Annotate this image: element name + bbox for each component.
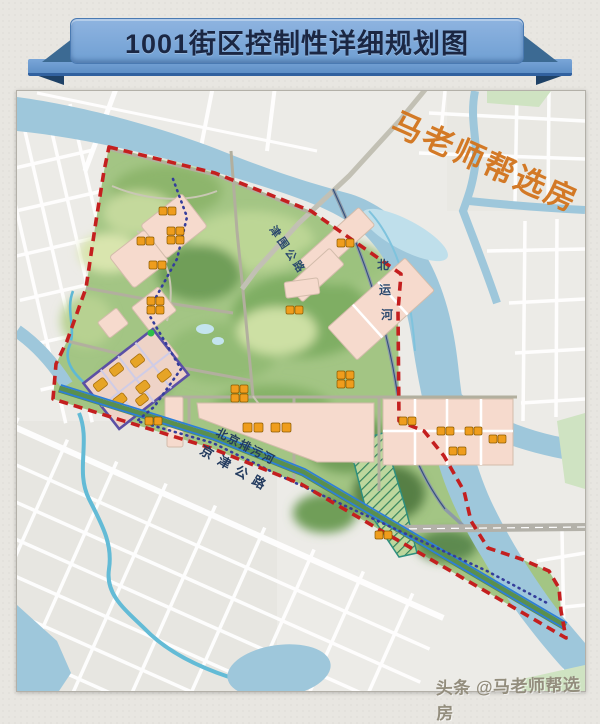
page-title: 1001街区控制性详细规划图 <box>125 22 469 61</box>
map-canvas: 北 运 河 津围公路 北京排污河 京津公路 马老师帮选房 <box>17 91 585 691</box>
page: 1001街区控制性详细规划图 <box>0 0 600 714</box>
title-banner: 1001街区控制性详细规划图 <box>0 0 600 90</box>
svg-text:运: 运 <box>379 283 391 297</box>
svg-text:北: 北 <box>377 257 389 272</box>
river-bridge <box>395 527 585 529</box>
green-dot <box>148 330 155 337</box>
svg-text:河: 河 <box>380 307 393 322</box>
park-pond <box>196 324 214 334</box>
credit-text: 头条 @马老师帮选房 <box>435 670 596 724</box>
planning-map: 北 运 河 津围公路 北京排污河 京津公路 马老师帮选房 <box>16 90 586 692</box>
title-ribbon: 1001街区控制性详细规划图 <box>70 18 524 64</box>
